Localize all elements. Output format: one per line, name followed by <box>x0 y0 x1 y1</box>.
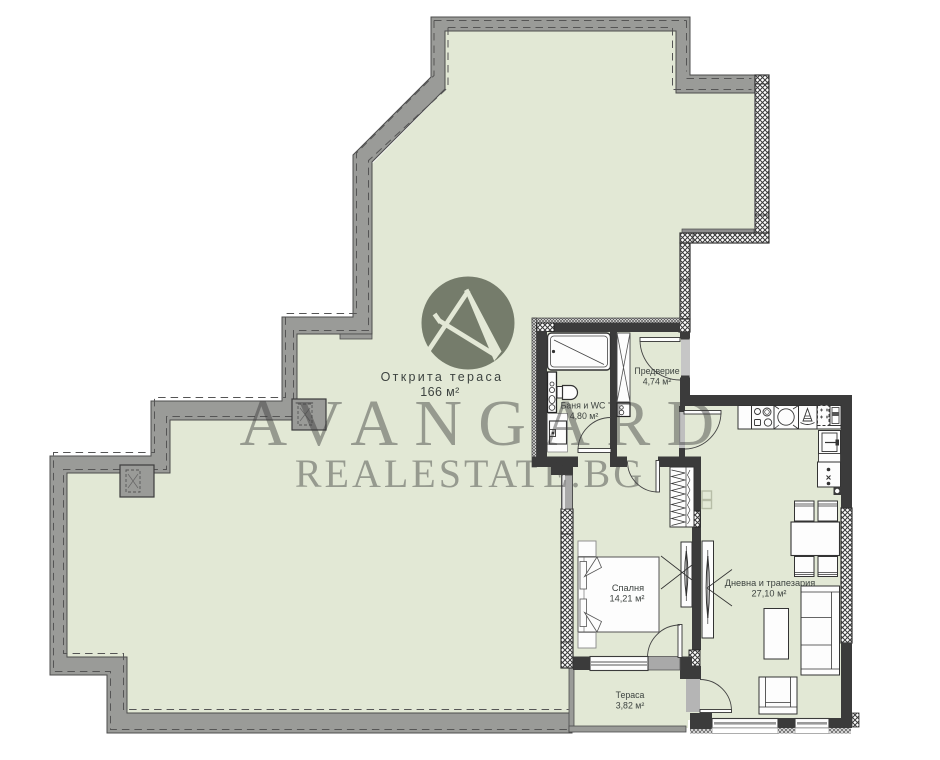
svg-text:Тераса: Тераса <box>616 690 645 700</box>
svg-text:Спалня: Спалня <box>612 583 644 593</box>
svg-text:4,74 м²: 4,74 м² <box>643 377 672 387</box>
svg-text:Предверие: Предверие <box>634 366 679 376</box>
svg-text:14,21 м²: 14,21 м² <box>610 594 645 604</box>
svg-text:Дневна и трапезария: Дневна и трапезария <box>725 578 816 588</box>
svg-text:Открита тераса: Открита тераса <box>381 370 504 384</box>
svg-text:27,10 м²: 27,10 м² <box>752 589 787 599</box>
svg-text:AVANGARD: AVANGARD <box>239 387 730 460</box>
svg-text:REALESTATE.BG: REALESTATE.BG <box>295 451 645 496</box>
svg-text:3,82 м²: 3,82 м² <box>616 701 645 711</box>
